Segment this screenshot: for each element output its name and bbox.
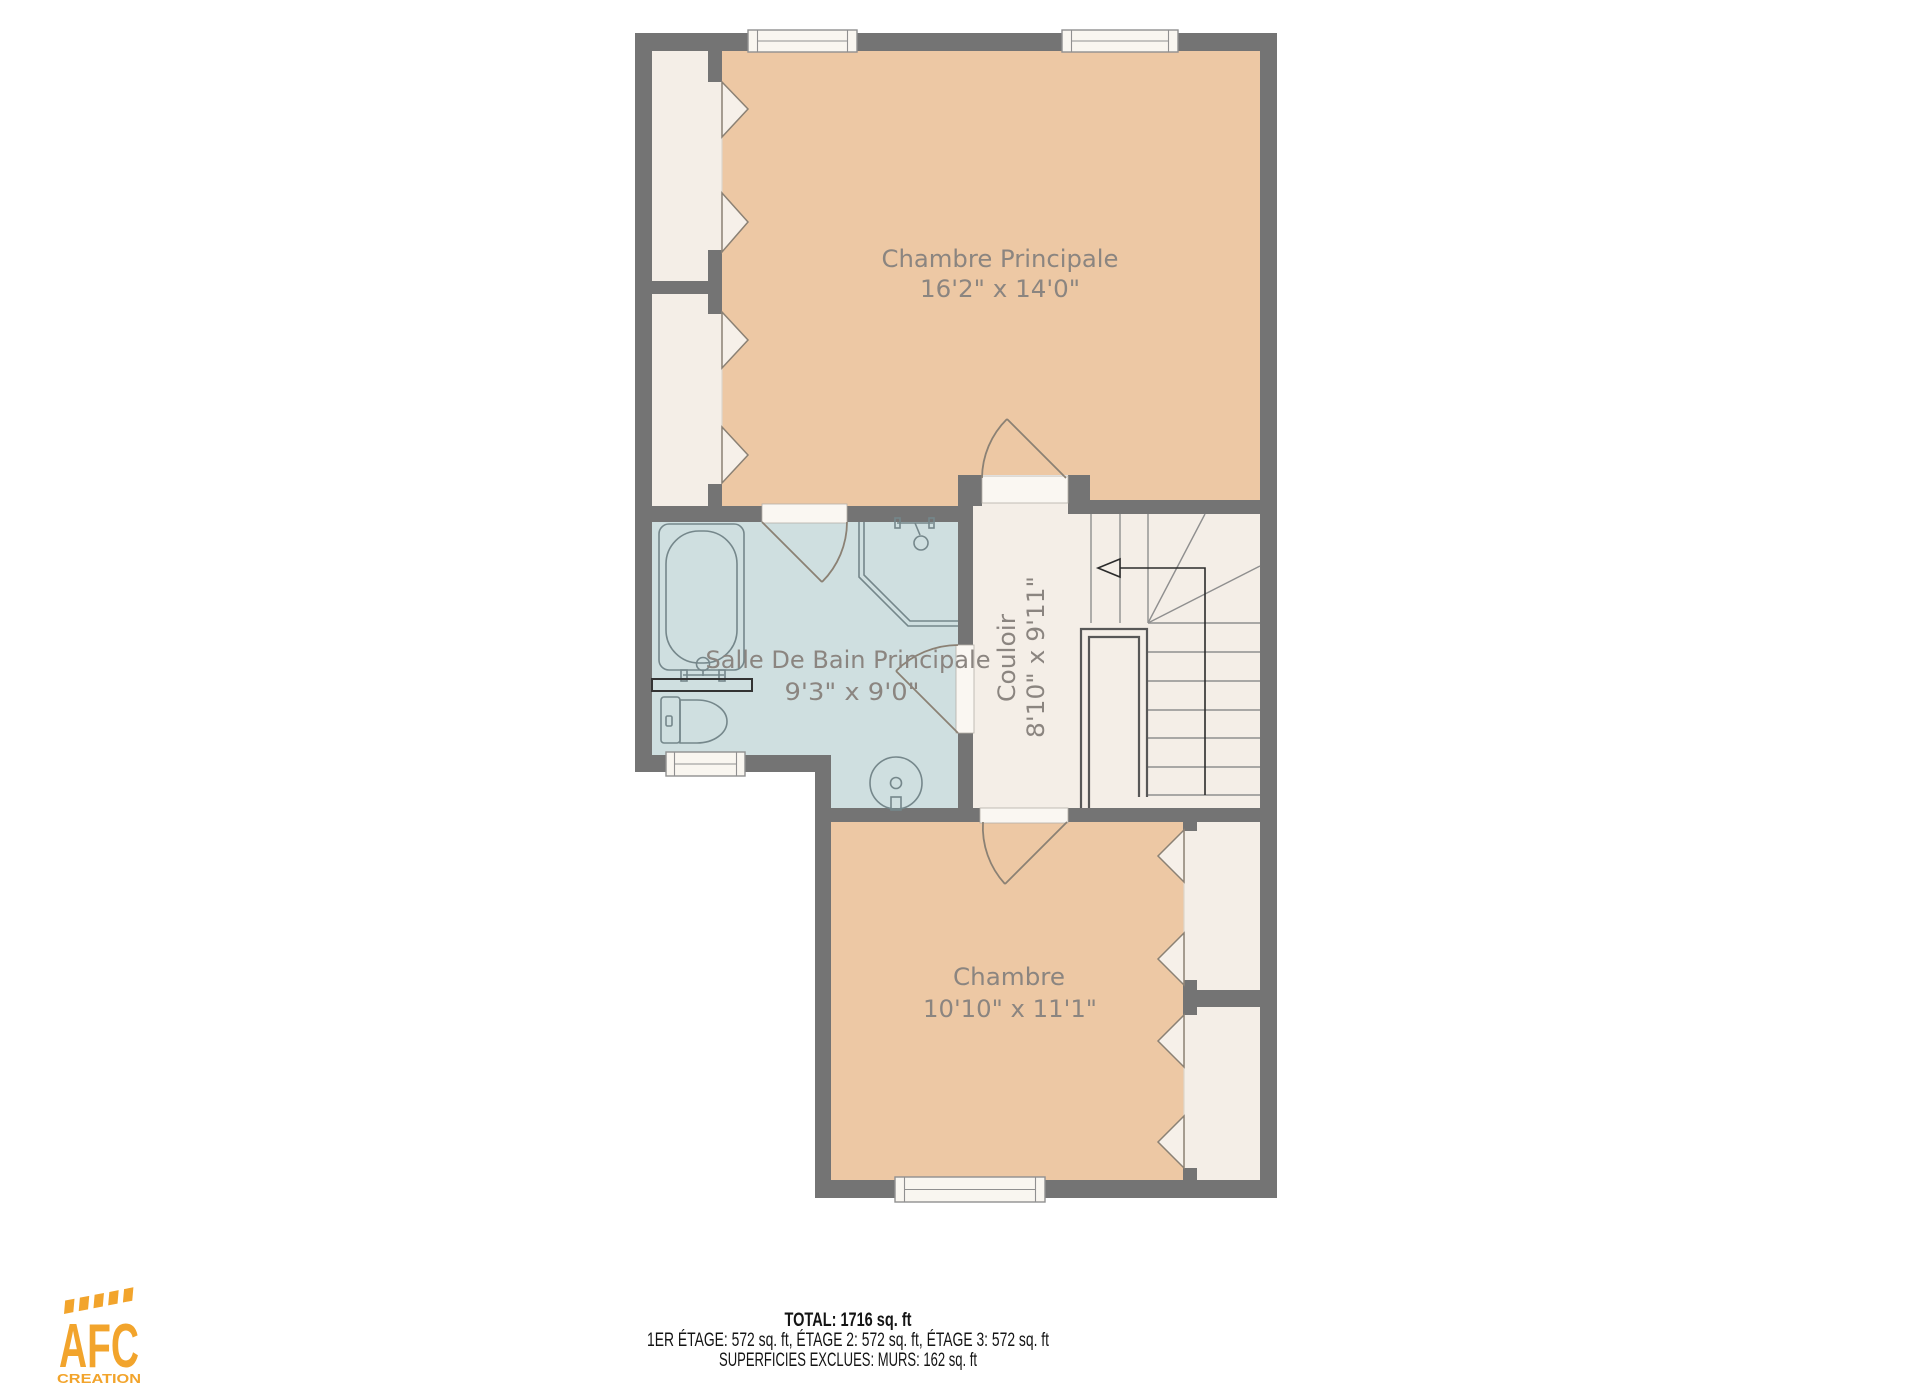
wall-stub bbox=[708, 250, 722, 281]
closet-fill-upper-right bbox=[1184, 822, 1260, 990]
wall-stub-couloir-stairs bbox=[1068, 475, 1090, 514]
room-label-chambre: Chambre bbox=[953, 963, 1065, 991]
wall-right bbox=[1260, 33, 1277, 1198]
wall-stub bbox=[1183, 1168, 1197, 1180]
footer-total: TOTAL: 1716 sq. ft bbox=[785, 1310, 913, 1331]
closet-fill-lower-left bbox=[652, 294, 722, 506]
wall-stub bbox=[708, 484, 722, 506]
window bbox=[895, 1177, 1045, 1202]
wall-stub bbox=[708, 294, 722, 314]
wall-stairs-top bbox=[1090, 500, 1260, 514]
wall-stub bbox=[1183, 822, 1197, 831]
wall-closet-mid-left bbox=[635, 281, 722, 294]
floor-plan-page: Chambre Principale 16'2" x 14'0" Salle D… bbox=[0, 0, 1920, 1391]
room-label-salle-de-bain: Salle De Bain Principale bbox=[706, 646, 991, 674]
wall-closet-mid-right bbox=[1197, 990, 1277, 1007]
wall-stub bbox=[708, 51, 722, 82]
room-dimensions-chambre: 10'10" x 11'1" bbox=[923, 995, 1097, 1023]
closet-fill-upper-left bbox=[652, 51, 722, 281]
room-label-couloir: Couloir bbox=[993, 614, 1021, 702]
logo-subtitle: CREATION bbox=[57, 1371, 141, 1386]
wall-bath-couloir-lower bbox=[958, 733, 973, 808]
wall-left bbox=[635, 33, 652, 772]
room-dimensions-salle-de-bain: 9'3" x 9'0" bbox=[785, 678, 920, 706]
room-dimensions-couloir: 8'10" x 9'11" bbox=[1022, 576, 1050, 738]
footer-exclusions: SUPERFICIES EXCLUES: MURS: 162 sq. ft bbox=[719, 1350, 977, 1371]
wall-couloir-jamb bbox=[958, 475, 982, 506]
wall-top bbox=[635, 33, 1277, 51]
room-dimensions-chambre-principale: 16'2" x 14'0" bbox=[920, 275, 1080, 303]
window bbox=[666, 752, 745, 776]
floor-plan: Chambre Principale 16'2" x 14'0" Salle D… bbox=[0, 0, 1920, 1391]
wall-stub bbox=[1183, 980, 1197, 1015]
wall-bedroom-bathroom-left bbox=[635, 506, 762, 522]
wall-bottom bbox=[815, 1180, 1277, 1198]
wall-bedroom-bathroom-right bbox=[847, 506, 973, 522]
closet-fill-lower-right bbox=[1184, 1007, 1260, 1180]
window bbox=[748, 30, 857, 52]
footer-floor-areas: 1ER ÉTAGE: 572 sq. ft, ÉTAGE 2: 572 sq. … bbox=[647, 1330, 1050, 1351]
wall-chambre-top-right bbox=[1068, 808, 1277, 822]
room-label-chambre-principale: Chambre Principale bbox=[882, 245, 1119, 273]
wall-bath-couloir-upper bbox=[958, 522, 973, 645]
window bbox=[1062, 30, 1178, 52]
